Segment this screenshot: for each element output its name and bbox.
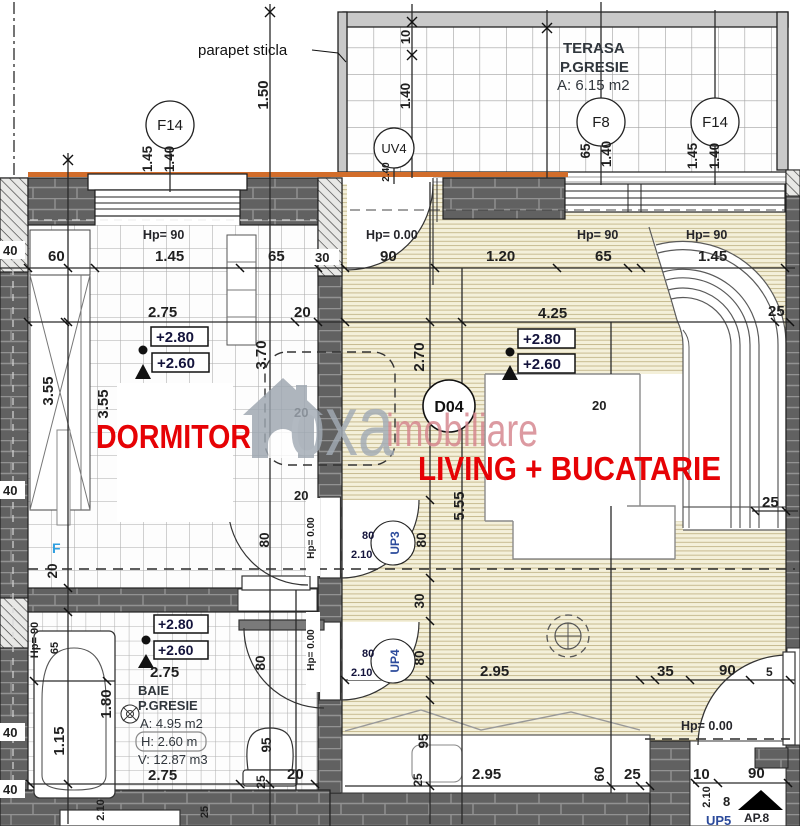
svg-text:Hp= 0.00: Hp= 0.00 xyxy=(306,629,317,671)
svg-text:40: 40 xyxy=(3,725,17,740)
svg-text:40: 40 xyxy=(3,243,17,258)
svg-text:2.40: 2.40 xyxy=(381,162,392,182)
svg-text:Hp= 90: Hp= 90 xyxy=(29,622,41,658)
svg-text:+2.60: +2.60 xyxy=(157,355,195,372)
svg-text:BAIE: BAIE xyxy=(138,683,169,698)
svg-text:60: 60 xyxy=(48,248,65,265)
svg-text:20: 20 xyxy=(592,398,606,413)
svg-text:1.40: 1.40 xyxy=(398,83,413,109)
svg-text:4.25: 4.25 xyxy=(538,305,567,322)
svg-text:+2.60: +2.60 xyxy=(158,642,194,658)
svg-text:1.15: 1.15 xyxy=(51,726,68,755)
svg-text:25: 25 xyxy=(411,773,425,787)
svg-text:5.55: 5.55 xyxy=(451,491,468,520)
svg-text:60: 60 xyxy=(592,766,607,781)
svg-text:1.45: 1.45 xyxy=(140,145,155,172)
svg-text:2.95: 2.95 xyxy=(472,766,501,783)
svg-text:AP.8: AP.8 xyxy=(744,811,769,825)
svg-text:3.55: 3.55 xyxy=(40,376,57,405)
svg-text:1.45: 1.45 xyxy=(685,142,700,169)
svg-text:25: 25 xyxy=(254,775,268,789)
svg-text:UP5: UP5 xyxy=(706,813,731,826)
svg-text:Hp= 0.00: Hp= 0.00 xyxy=(681,719,733,733)
svg-text:parapet sticla: parapet sticla xyxy=(198,42,288,59)
svg-text:90: 90 xyxy=(380,248,397,265)
svg-text:P.GRESIE: P.GRESIE xyxy=(138,698,198,713)
svg-text:20: 20 xyxy=(294,304,311,321)
svg-text:25: 25 xyxy=(199,806,211,818)
svg-text:+2.80: +2.80 xyxy=(156,329,194,346)
svg-text:65: 65 xyxy=(578,143,593,159)
svg-text:65: 65 xyxy=(268,248,285,265)
svg-text:40: 40 xyxy=(3,782,17,797)
svg-text:F14: F14 xyxy=(702,114,728,131)
svg-text:8: 8 xyxy=(723,794,730,809)
svg-text:95: 95 xyxy=(416,733,431,749)
svg-text:2.10: 2.10 xyxy=(701,786,713,807)
svg-text:2.75: 2.75 xyxy=(148,767,177,784)
svg-text:20: 20 xyxy=(294,488,308,503)
svg-text:30: 30 xyxy=(315,250,329,265)
svg-text:Hp= 90: Hp= 90 xyxy=(143,228,184,242)
svg-text:V: 12.87 m3: V: 12.87 m3 xyxy=(138,752,208,767)
svg-text:5: 5 xyxy=(766,665,773,679)
svg-text:65: 65 xyxy=(595,248,612,265)
svg-text:40: 40 xyxy=(3,483,17,498)
svg-text:20: 20 xyxy=(45,563,60,578)
svg-text:oxa: oxa xyxy=(289,378,394,474)
svg-text:TERASA: TERASA xyxy=(563,40,625,57)
svg-text:+2.80: +2.80 xyxy=(158,616,194,632)
svg-text:UP4: UP4 xyxy=(388,649,402,673)
svg-text:A: 4.95 m2: A: 4.95 m2 xyxy=(140,716,203,731)
svg-text:2.10: 2.10 xyxy=(351,549,372,561)
svg-text:2.95: 2.95 xyxy=(480,663,509,680)
svg-text:2.10: 2.10 xyxy=(95,799,107,820)
svg-text:25: 25 xyxy=(768,303,785,320)
svg-text:Hp= 90: Hp= 90 xyxy=(577,228,618,242)
svg-text:2.75: 2.75 xyxy=(150,664,179,681)
svg-text:+2.80: +2.80 xyxy=(523,331,561,348)
svg-text:1.45: 1.45 xyxy=(698,248,727,265)
svg-text:2.10: 2.10 xyxy=(351,667,372,679)
svg-text:+2.60: +2.60 xyxy=(523,356,561,373)
svg-text:2.70: 2.70 xyxy=(411,342,428,371)
svg-text:DORMITOR: DORMITOR xyxy=(96,418,251,455)
svg-text:F8: F8 xyxy=(592,114,610,131)
svg-text:1.80: 1.80 xyxy=(98,689,115,718)
svg-text:80: 80 xyxy=(362,530,374,542)
svg-text:1.40: 1.40 xyxy=(162,146,177,172)
svg-text:35: 35 xyxy=(657,663,674,680)
svg-text:90: 90 xyxy=(719,662,736,679)
svg-text:P.GRESIE: P.GRESIE xyxy=(560,59,629,76)
svg-text:3.55: 3.55 xyxy=(95,389,112,418)
svg-text:1.50: 1.50 xyxy=(255,80,272,109)
svg-text:F: F xyxy=(52,540,61,556)
svg-text:UV4: UV4 xyxy=(381,141,406,156)
svg-text:95: 95 xyxy=(259,737,274,753)
svg-text:UP3: UP3 xyxy=(388,531,402,555)
svg-text:25: 25 xyxy=(624,766,641,783)
svg-text:Hp= 0.00: Hp= 0.00 xyxy=(306,517,317,559)
svg-text:80: 80 xyxy=(362,648,374,660)
svg-text:30: 30 xyxy=(412,593,427,608)
svg-text:25: 25 xyxy=(762,494,779,511)
svg-text:imobiliare: imobiliare xyxy=(386,404,538,456)
svg-text:F14: F14 xyxy=(157,117,183,134)
svg-text:80: 80 xyxy=(257,532,272,547)
svg-text:1.20: 1.20 xyxy=(486,248,515,265)
svg-text:H: 2.60 m: H: 2.60 m xyxy=(141,734,197,749)
svg-text:Hp= 90: Hp= 90 xyxy=(686,228,727,242)
svg-text:65: 65 xyxy=(49,642,61,654)
svg-text:3.70: 3.70 xyxy=(253,340,270,369)
svg-text:20: 20 xyxy=(287,766,304,783)
svg-text:10: 10 xyxy=(693,766,710,783)
svg-text:Hp= 0.00: Hp= 0.00 xyxy=(366,228,418,242)
svg-text:2.75: 2.75 xyxy=(148,304,177,321)
svg-text:1.40: 1.40 xyxy=(599,141,614,167)
svg-text:80: 80 xyxy=(253,655,268,670)
svg-text:90: 90 xyxy=(748,765,765,782)
svg-text:80: 80 xyxy=(414,532,429,547)
svg-text:1.45: 1.45 xyxy=(155,248,184,265)
svg-text:1.40: 1.40 xyxy=(707,143,722,169)
svg-text:80: 80 xyxy=(412,650,427,665)
svg-text:10: 10 xyxy=(398,30,413,44)
svg-text:A: 6.15 m2: A: 6.15 m2 xyxy=(557,77,630,94)
